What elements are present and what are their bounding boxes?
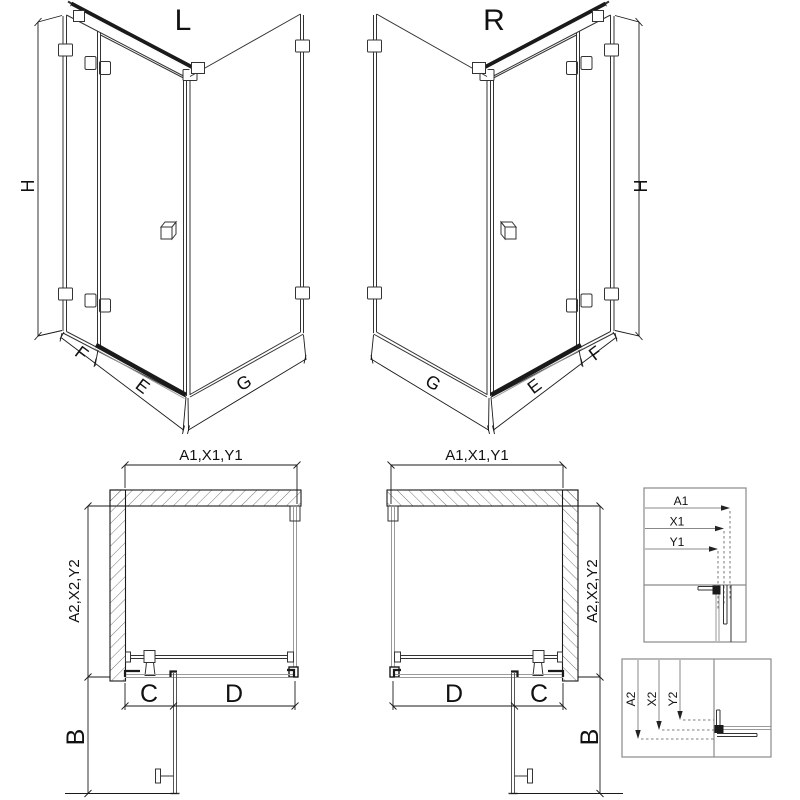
plan-left-door-label: D [225, 680, 243, 708]
detail-depth-frame [622, 659, 771, 757]
detail-width-label-x1: X1 [670, 515, 685, 529]
clamp-block [715, 725, 724, 733]
iso-view-left: L H F E G [18, 2, 310, 435]
iso-left-fixed-label: F [71, 342, 92, 365]
detail-depth-label-x2: X2 [645, 691, 659, 706]
plan-right-swing-label: B [576, 729, 604, 746]
clamp-block [713, 586, 721, 595]
iso-right-fixed-label: F [585, 342, 606, 365]
arrow-down-icon [656, 721, 661, 730]
detail-inset-width: A1 X1 Y1 [644, 488, 746, 642]
arrow-right-icon [709, 546, 718, 551]
detail-inset-depth: A2 X2 Y2 [622, 659, 771, 757]
iso-left-version-label: L [175, 4, 192, 37]
shower-enclosure-dimension-sheet: L H F E G R H F E G A1,X1,Y1 A2,X2,Y2 C … [0, 0, 800, 800]
detail-depth-profile [715, 710, 771, 737]
arrow-down-icon [677, 711, 682, 720]
arrow-right-icon [715, 526, 724, 531]
plan-view-right: A1,X1,Y1 A2,X2,Y2 C D B [387, 447, 623, 797]
plan-right-depth-label: A2,X2,Y2 [584, 559, 601, 622]
plan-left-swing-label: B [62, 729, 90, 746]
iso-view-right: R H F E G [368, 2, 652, 435]
iso-right-height-label: H [631, 180, 651, 193]
plan-view-left: A1,X1,Y1 A2,X2,Y2 C D B [62, 447, 301, 797]
detail-depth-label-y2: Y2 [666, 691, 680, 706]
detail-width-label-y1: Y1 [670, 535, 685, 549]
plan-left-fixed-label: C [140, 680, 158, 708]
plan-right-door-label: D [445, 680, 463, 708]
detail-width-profile [698, 585, 731, 642]
plan-right-width-label: A1,X1,Y1 [445, 447, 508, 464]
plan-right-fixed-label: C [530, 680, 548, 708]
plan-geometry-right [387, 462, 623, 798]
plan-geometry-left [65, 462, 301, 798]
iso-geometry-left [35, 2, 310, 435]
arrow-right-icon [721, 505, 730, 510]
drawing-canvas: L H F E G R H F E G A1,X1,Y1 A2,X2,Y2 C … [0, 0, 800, 800]
iso-geometry-right [368, 2, 643, 435]
plan-left-depth-label: A2,X2,Y2 [66, 559, 83, 622]
arrow-down-icon [635, 730, 640, 739]
iso-left-height-label: H [18, 180, 38, 193]
plan-left-width-label: A1,X1,Y1 [179, 447, 242, 464]
detail-width-label-a1: A1 [674, 494, 689, 508]
detail-depth-label-a2: A2 [624, 691, 638, 706]
iso-right-version-label: R [483, 4, 505, 37]
